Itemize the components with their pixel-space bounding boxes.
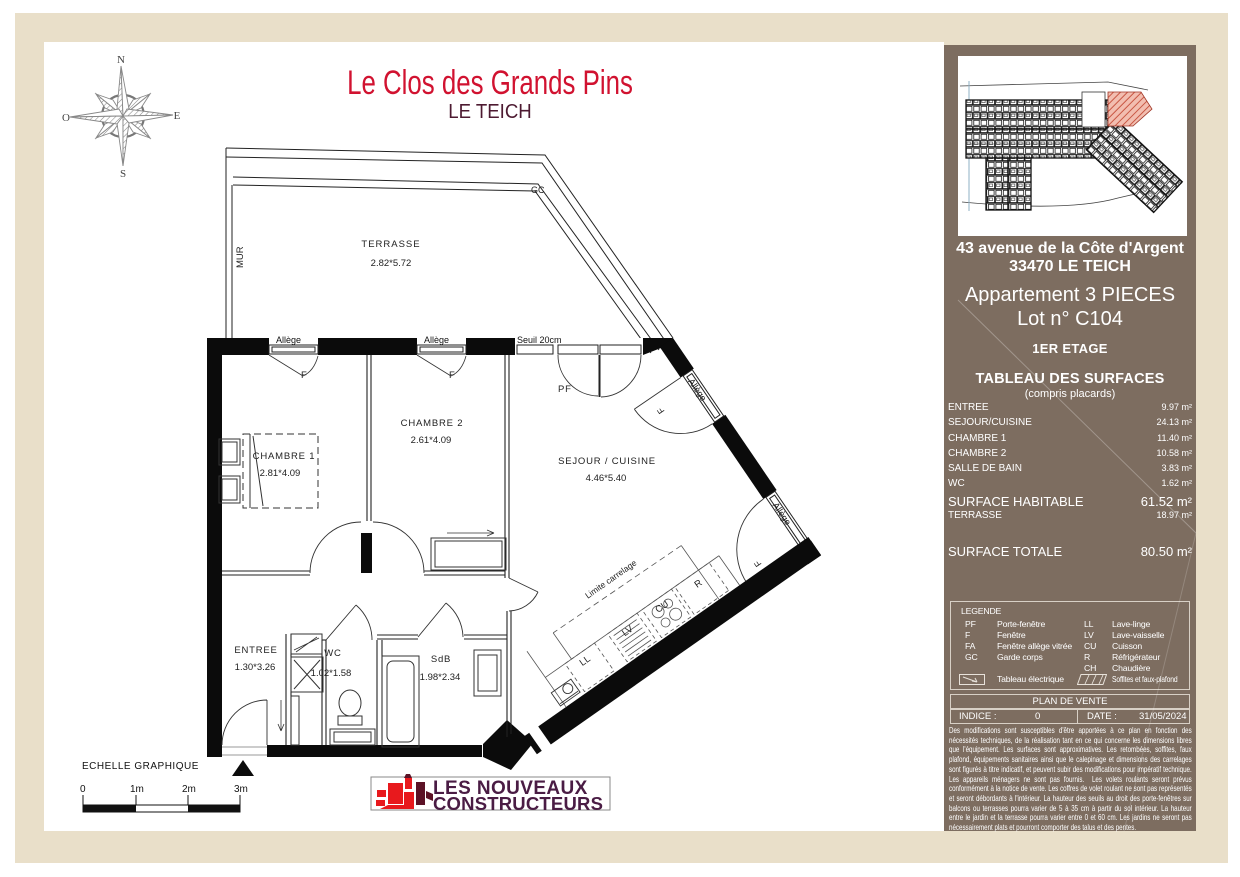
svg-text:CHAMBRE 1: CHAMBRE 1 [253,451,316,462]
svg-text:2.61*4.09: 2.61*4.09 [411,435,452,446]
svg-text:SEJOUR / CUISINE: SEJOUR / CUISINE [558,456,656,467]
svg-text:1.98*2.34: 1.98*2.34 [420,672,461,683]
svg-text:WC: WC [324,648,341,659]
svg-text:2m: 2m [182,784,196,795]
svg-text:MUR: MUR [235,246,246,268]
svg-text:N: N [117,54,125,66]
svg-text:4.46*5.40: 4.46*5.40 [586,473,627,484]
svg-text:E: E [174,110,181,122]
svg-text:ENTREE: ENTREE [234,645,277,656]
svg-text:1m: 1m [130,784,144,795]
svg-text:SdB: SdB [431,654,451,665]
svg-text:PF: PF [558,384,572,395]
svg-text:1.02*1.58: 1.02*1.58 [311,668,352,679]
svg-text:CU: CU [653,599,671,616]
svg-text:LL: LL [578,654,593,669]
svg-text:F: F [655,405,667,416]
svg-text:F: F [752,558,764,569]
svg-text:S: S [120,168,126,180]
svg-text:LV: LV [620,623,636,639]
svg-text:3m: 3m [234,784,248,795]
svg-text:Seuil 20cm: Seuil 20cm [517,335,562,345]
svg-text:O: O [62,112,70,124]
svg-text:Allège: Allège [424,335,449,345]
svg-text:2.82*5.72: 2.82*5.72 [371,258,412,269]
svg-text:1.30*3.26: 1.30*3.26 [235,662,276,673]
svg-text:CHAMBRE 2: CHAMBRE 2 [401,418,464,429]
svg-text:2.81*4.09: 2.81*4.09 [260,468,301,479]
svg-text:CONSTRUCTEURS: CONSTRUCTEURS [433,793,603,814]
svg-text:F: F [301,370,308,381]
svg-text:Limite carrelage: Limite carrelage [583,557,638,600]
svg-text:TERRASSE: TERRASSE [361,239,420,250]
svg-text:0: 0 [80,784,86,795]
svg-text:Allège: Allège [276,335,301,345]
svg-text:F: F [449,370,456,381]
svg-text:ECHELLE GRAPHIQUE: ECHELLE GRAPHIQUE [82,761,199,772]
svg-text:GC: GC [531,185,545,195]
svg-text:R: R [693,578,705,591]
